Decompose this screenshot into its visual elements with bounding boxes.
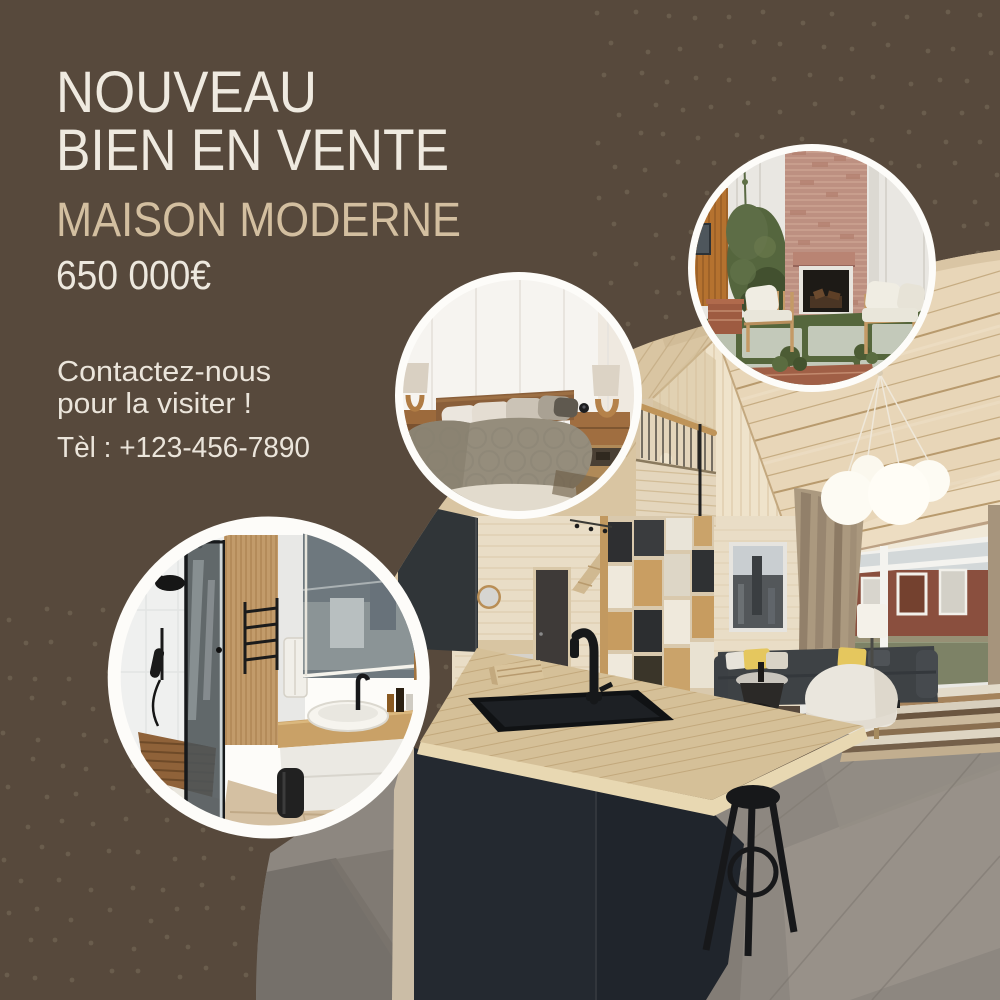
svg-text:650 000€: 650 000€ bbox=[56, 252, 211, 298]
svg-text:BIEN EN VENTE: BIEN EN VENTE bbox=[56, 118, 449, 183]
svg-text:Contactez-nous: Contactez-nous bbox=[57, 356, 271, 388]
svg-text:MAISON MODERNE: MAISON MODERNE bbox=[56, 194, 461, 247]
svg-text:pour la visiter !: pour la visiter ! bbox=[57, 388, 252, 420]
svg-text:Tèl : +123-456-7890: Tèl : +123-456-7890 bbox=[57, 432, 310, 464]
svg-text:NOUVEAU: NOUVEAU bbox=[56, 60, 317, 125]
